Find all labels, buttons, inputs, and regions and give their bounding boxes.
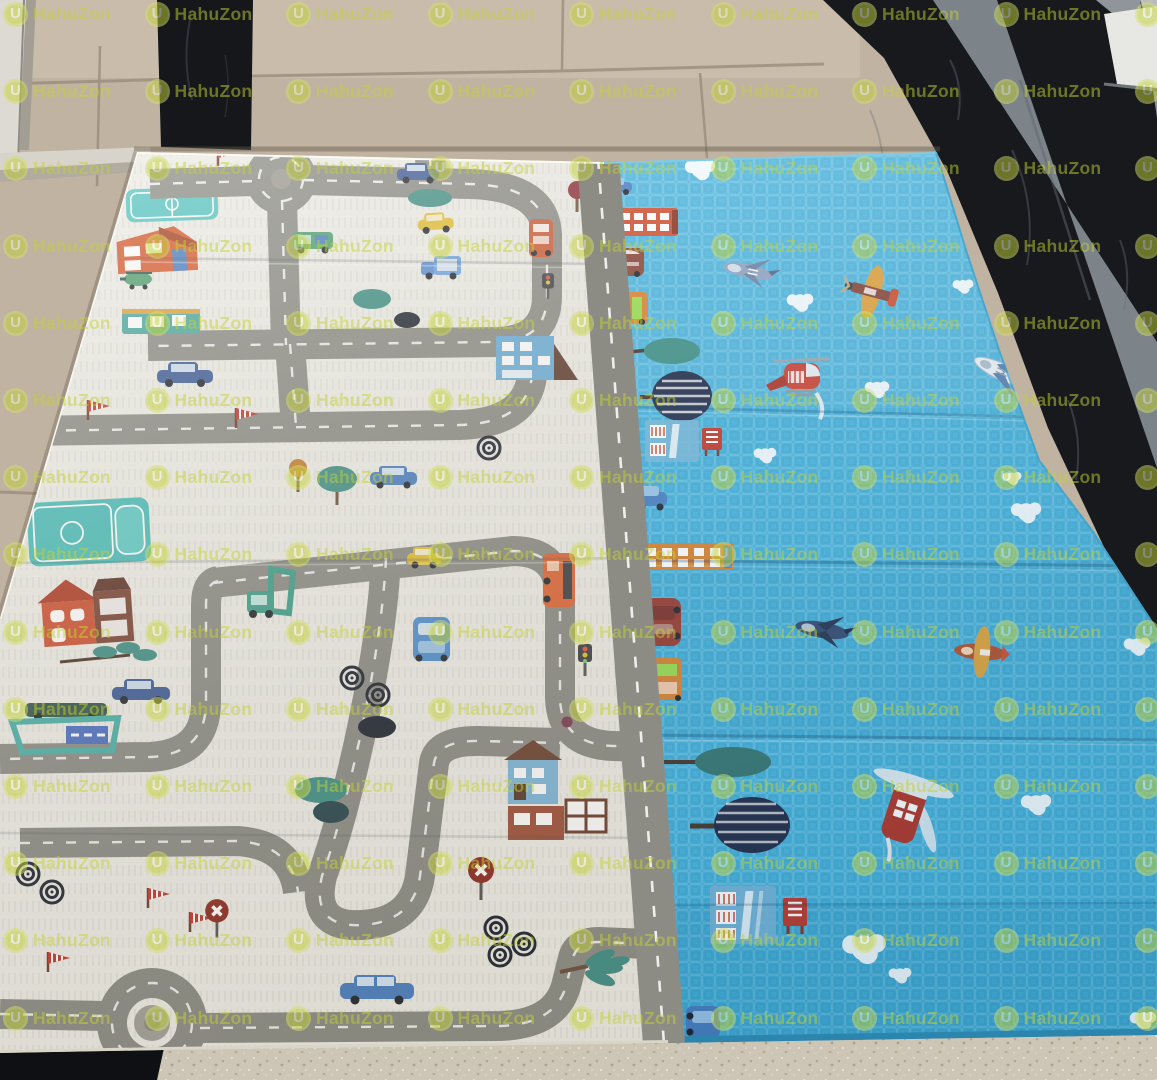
- black-tile-column: [157, 0, 253, 150]
- playmat-photo: [0, 0, 1157, 1080]
- photo-stage: UHahuZonUHahuZonUHahuZonUHahuZonUHahuZon…: [0, 0, 1157, 1080]
